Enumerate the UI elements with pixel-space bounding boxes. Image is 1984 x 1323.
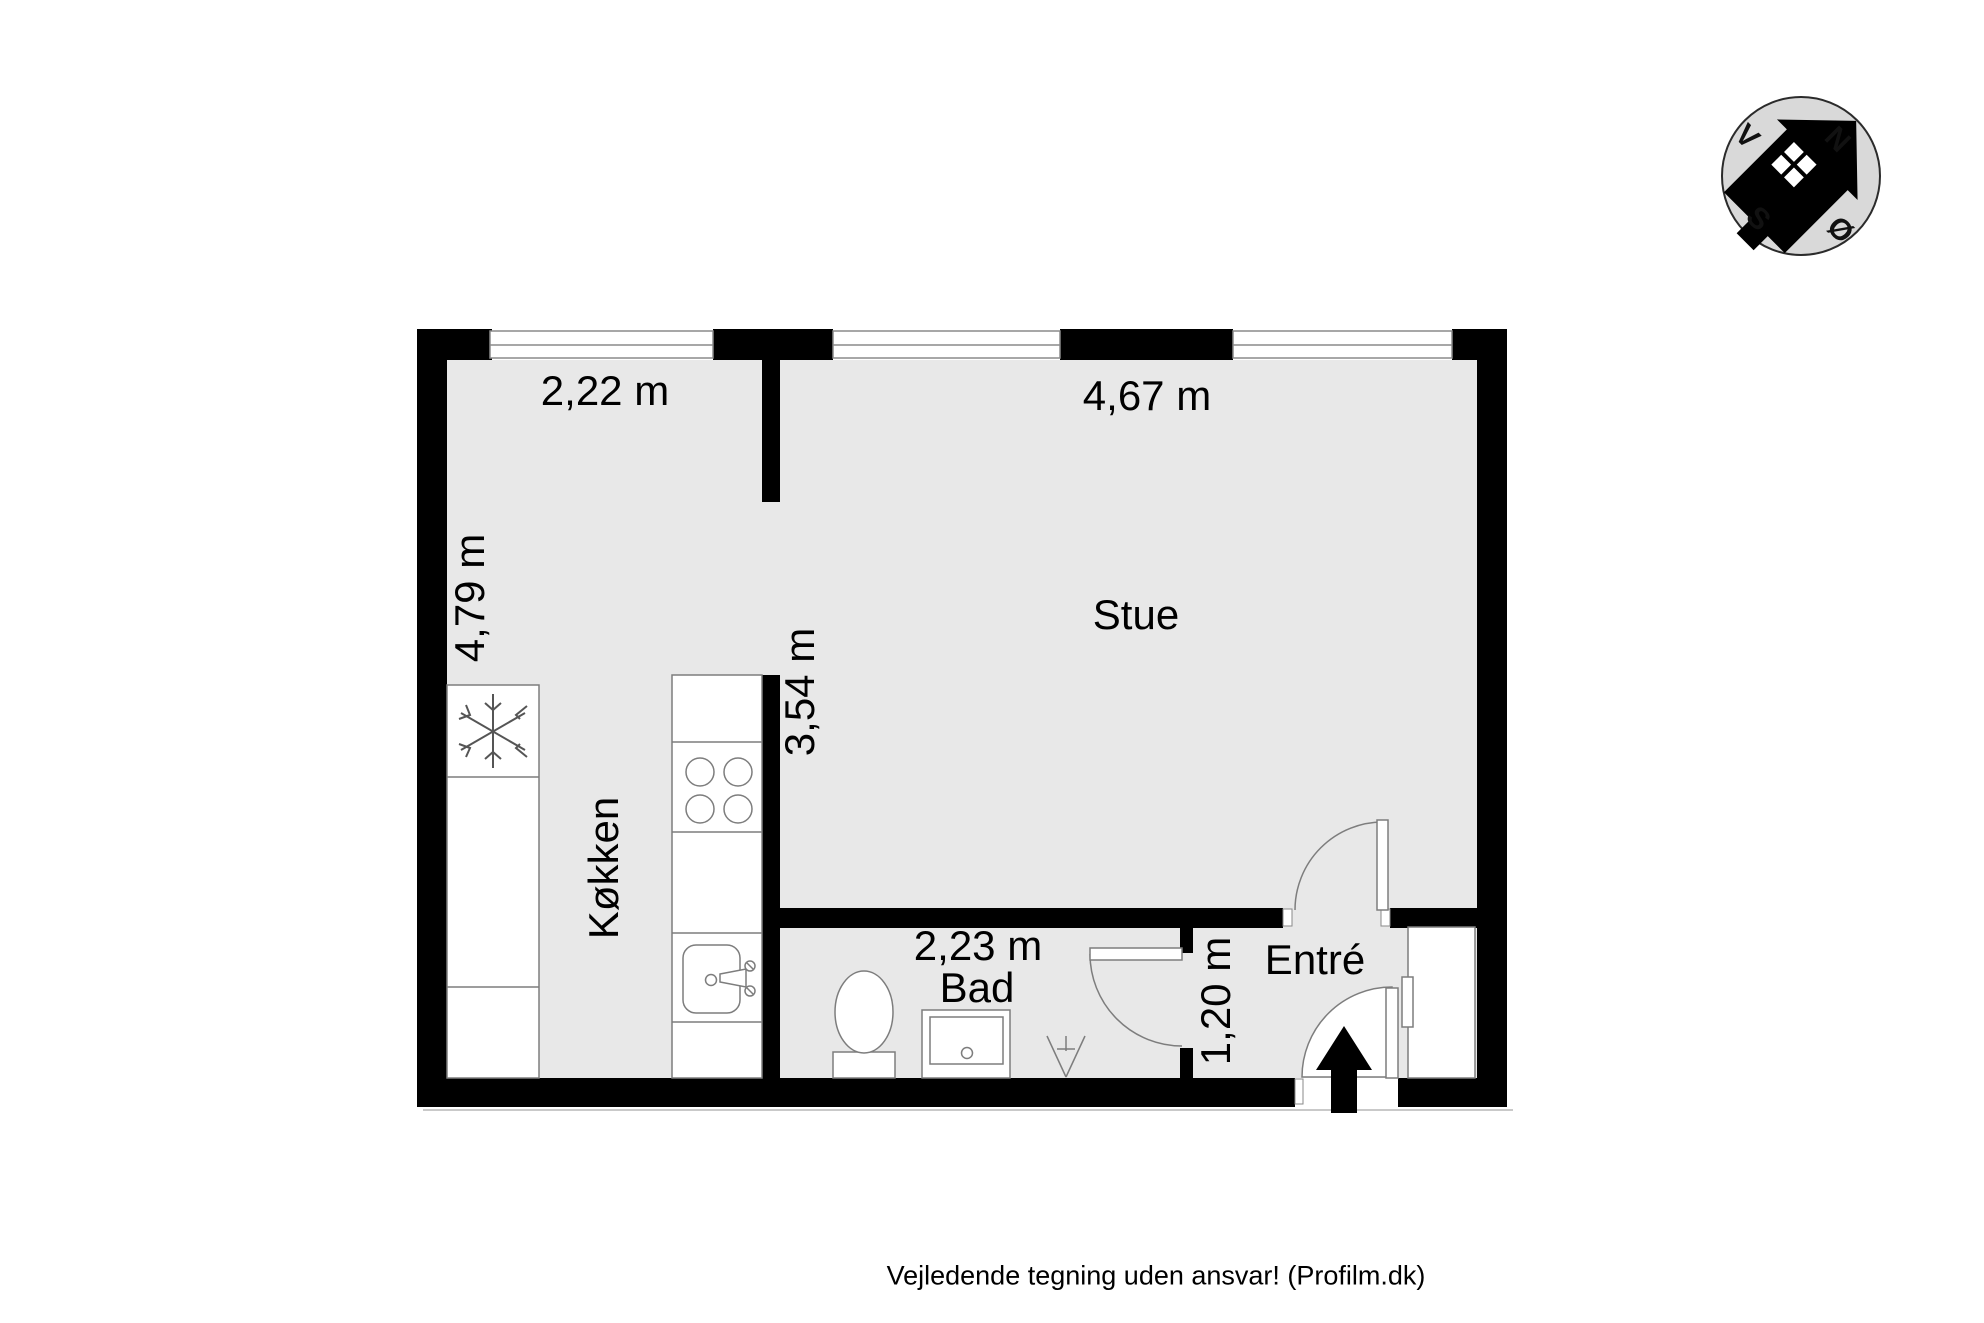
jamb-living-door-left bbox=[1283, 909, 1292, 926]
floor-plan-drawing: N V S Ø bbox=[0, 0, 1984, 1323]
dimension-living-depth: 3,54 m bbox=[778, 628, 822, 756]
entry-closet bbox=[1402, 927, 1475, 1078]
room-label-entry: Entré bbox=[1265, 938, 1365, 982]
wall-kitchen-divider-upper bbox=[762, 360, 780, 502]
window-1 bbox=[490, 331, 713, 358]
disclaimer-text: Vejledende tegning uden ansvar! (Profilm… bbox=[887, 1261, 1426, 1292]
floor-plan-page: N V S Ø 2,22 m 4,67 m 4,79 m 3,54 m Stue… bbox=[0, 0, 1984, 1323]
window-2 bbox=[833, 331, 1060, 358]
dimension-entry-depth: 1,20 m bbox=[1194, 937, 1238, 1065]
jamb-living-door-right bbox=[1381, 909, 1390, 926]
dimension-living-width: 4,67 m bbox=[1083, 374, 1211, 418]
closet-handle bbox=[1402, 977, 1413, 1027]
windows bbox=[490, 331, 1452, 358]
wall-left bbox=[417, 329, 447, 1107]
room-label-living: Stue bbox=[1093, 593, 1179, 637]
toilet-icon bbox=[833, 971, 895, 1078]
room-label-bath: Bad bbox=[940, 966, 1015, 1010]
wall-top-seg2 bbox=[713, 329, 833, 360]
living-room-door-leaf bbox=[1377, 820, 1388, 910]
wall-top-seg3 bbox=[1060, 329, 1233, 360]
wall-top-seg4 bbox=[1452, 329, 1507, 360]
bathroom-sink-icon bbox=[922, 1010, 1010, 1078]
dimension-kitchen-depth: 4,79 m bbox=[448, 534, 492, 662]
dimension-kitchen-width: 2,22 m bbox=[541, 369, 669, 413]
wall-living-bottom-right bbox=[1390, 908, 1477, 928]
wall-top-seg1 bbox=[417, 329, 492, 360]
front-door-leaf bbox=[1386, 988, 1398, 1078]
kitchen-counter-right bbox=[672, 675, 762, 1078]
dimension-bath-width: 2,23 m bbox=[914, 924, 1042, 968]
wall-right bbox=[1477, 329, 1507, 1107]
room-label-kitchen: Køkken bbox=[582, 797, 626, 939]
bathroom-door-leaf bbox=[1090, 948, 1182, 960]
wall-bottom-seg2 bbox=[1398, 1078, 1507, 1107]
window-3 bbox=[1233, 331, 1452, 358]
compass-rose: N V S Ø bbox=[1686, 67, 1911, 292]
jamb-front-door-left bbox=[1295, 1079, 1303, 1104]
wall-bottom-seg1 bbox=[417, 1078, 1295, 1107]
